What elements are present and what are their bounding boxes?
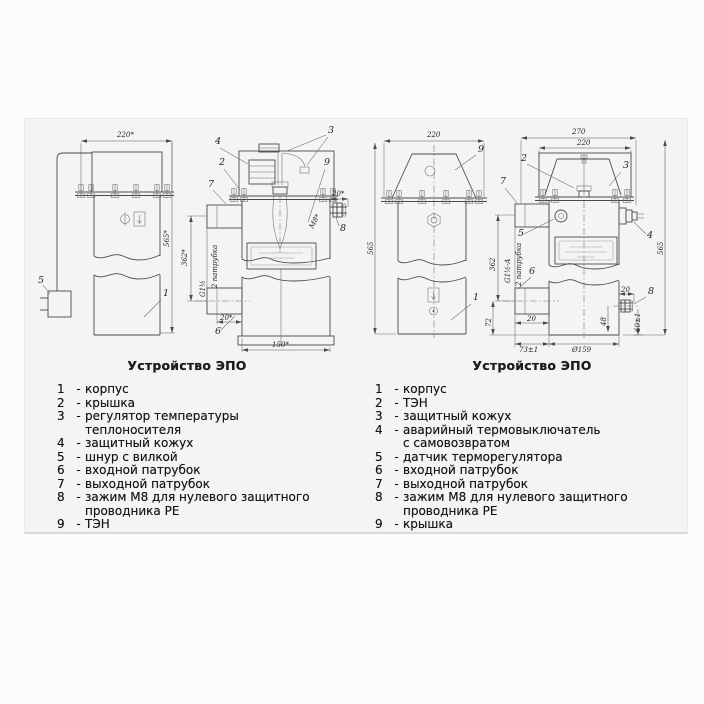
dash: -: [390, 424, 403, 451]
dash: -: [72, 518, 85, 532]
parts-list-item: 9-ТЭН: [57, 518, 367, 532]
dim-label: 60±1: [634, 313, 642, 332]
callout-number: 7: [500, 176, 507, 187]
dash: -: [72, 464, 85, 478]
figure2-section: 220 9: [367, 125, 697, 532]
scanned-page: 220* 5 1: [24, 118, 688, 534]
dim-label: 270: [571, 128, 586, 136]
part-number: 7: [375, 478, 390, 492]
callout-number: 2: [218, 157, 225, 168]
part-label: входной патрубок: [85, 464, 337, 478]
part-label: датчик терморегулятора: [403, 451, 655, 465]
part-label: выходной патрубок: [85, 478, 337, 492]
dash: -: [390, 518, 403, 532]
callout-number: 3: [328, 125, 334, 136]
dim-label: 73±1: [519, 346, 538, 354]
dim-label: 362: [489, 257, 497, 271]
dash: -: [72, 491, 85, 518]
dim-label: 48: [600, 317, 608, 327]
fig1-section-view: 3 4 2 9 150* 7: [181, 125, 348, 352]
callout-number: 5: [38, 275, 44, 286]
parts-list-item: 5-шнур с вилкой: [57, 451, 367, 465]
figure-caption: Устройство ЭПО: [367, 358, 697, 373]
dim-label: 150*: [272, 341, 289, 349]
part-number: 3: [57, 410, 72, 437]
parts-list-item: 3-регулятор температуры теплоносителя: [57, 410, 367, 437]
part-label: аварийный термовыключатель с самовозврат…: [403, 424, 655, 451]
figure1-drawing: 220* 5 1: [37, 125, 357, 355]
part-label: входной патрубок: [403, 464, 655, 478]
parts-list-item: 8-зажим М8 для нулевого защитного провод…: [57, 491, 367, 518]
callout-number: 8: [340, 223, 346, 234]
part-number: 5: [375, 451, 390, 465]
thermostat-sensor: [555, 210, 567, 222]
part-label: защитный кожух: [403, 410, 655, 424]
part-label: ТЭН: [85, 518, 337, 532]
dash: -: [390, 478, 403, 492]
dim-label: 220: [426, 131, 441, 139]
fig2-front-view: 220 9: [367, 131, 487, 338]
outlet-pipe: [515, 204, 549, 227]
part-label: ТЭН: [403, 397, 655, 411]
part-number: 5: [57, 451, 72, 465]
dim-label: 565*: [163, 230, 171, 247]
dim-label: 20*: [219, 314, 233, 322]
part-label: крышка: [403, 518, 655, 532]
callout-number: 1: [163, 288, 169, 299]
outlet-pipe: [207, 205, 242, 228]
part-label: крышка: [85, 397, 337, 411]
figure2-drawing: 220 9: [367, 125, 677, 355]
dim-label: 220*: [116, 131, 134, 139]
dim-label: 20*: [331, 190, 345, 198]
part-label: зажим М8 для нулевого защитного проводни…: [85, 491, 337, 518]
callout-number: 5: [518, 228, 524, 239]
part-number: 6: [57, 464, 72, 478]
dim-label: 362*: [181, 249, 189, 266]
part-number: 4: [57, 437, 72, 451]
part-number: 1: [375, 383, 390, 397]
parts-list-item: 4-аварийный термовыключатель с самовозвр…: [375, 424, 697, 451]
dim-label: 20: [526, 315, 536, 323]
dim-label: 2 патрубка: [211, 245, 219, 289]
callout-number: 4: [214, 136, 221, 147]
part-number: 9: [375, 518, 390, 532]
dim-label: 20: [620, 286, 630, 294]
parts-list-item: 2-крышка: [57, 397, 367, 411]
dash: -: [390, 383, 403, 397]
parts-list-item: 9-крышка: [375, 518, 697, 532]
part-number: 7: [57, 478, 72, 492]
parts-list-item: 1-корпус: [57, 383, 367, 397]
callout-number: 6: [215, 326, 221, 337]
dash: -: [72, 478, 85, 492]
parts-list-item: 6-входной патрубок: [57, 464, 367, 478]
plug: [48, 291, 71, 317]
callout-number: 3: [623, 160, 629, 171]
dim-label: G1½: [199, 280, 207, 297]
part-label: шнур с вилкой: [85, 451, 337, 465]
callout-number: 1: [473, 292, 479, 303]
heating-element: [273, 196, 280, 249]
part-number: 9: [57, 518, 72, 532]
dash: -: [390, 397, 403, 411]
part-number: 8: [57, 491, 72, 518]
parts-list-item: 3-защитный кожух: [375, 410, 697, 424]
parts-list: 1-корпус 2-ТЭН 3-защитный кожух 4-аварий…: [367, 383, 697, 532]
parts-list-item: 7-выходной патрубок: [57, 478, 367, 492]
part-label: регулятор температуры теплоносителя: [85, 410, 337, 437]
earth-stud: [333, 203, 337, 217]
dim-label: 72: [485, 318, 493, 327]
dash: -: [390, 451, 403, 465]
figure1-section: 220* 5 1: [37, 125, 367, 532]
part-number: 1: [57, 383, 72, 397]
dash: -: [72, 437, 85, 451]
part-label: выходной патрубок: [403, 478, 655, 492]
callout-number: 6: [529, 266, 535, 277]
parts-list-item: 5-датчик терморегулятора: [375, 451, 697, 465]
fig1-front-view: 220* 5 1: [38, 131, 175, 335]
page: { "ui": {"dash": "-"}, "fig1": { "captio…: [0, 0, 704, 704]
parts-list-item: 8-зажим М8 для нулевого защитного провод…: [375, 491, 697, 518]
part-label: корпус: [403, 383, 655, 397]
dim-label: Ø159: [571, 346, 592, 354]
part-label: защитный кожух: [85, 437, 337, 451]
dim-label: 565: [657, 241, 665, 255]
dim-label: 565: [367, 241, 375, 255]
part-number: 2: [57, 397, 72, 411]
part-label: зажим М8 для нулевого защитного проводни…: [403, 491, 655, 518]
callout-number: 8: [648, 286, 654, 297]
parts-list-item: 4-защитный кожух: [57, 437, 367, 451]
callout-number: 4: [646, 230, 653, 241]
part-number: 8: [375, 491, 390, 518]
dash: -: [72, 397, 85, 411]
parts-list-item: 2-ТЭН: [375, 397, 697, 411]
part-number: 6: [375, 464, 390, 478]
dash: -: [72, 451, 85, 465]
dash: -: [72, 410, 85, 437]
callout-number: 9: [478, 144, 484, 155]
parts-list-item: 6-входной патрубок: [375, 464, 697, 478]
figure-caption: Устройство ЭПО: [37, 358, 337, 373]
parts-list-item: 7-выходной патрубок: [375, 478, 697, 492]
part-number: 2: [375, 397, 390, 411]
dim-label: 2 патрубка: [515, 243, 523, 287]
dim-label: G1½-A: [504, 259, 512, 283]
dim-label: М8*: [307, 212, 322, 230]
part-label: корпус: [85, 383, 337, 397]
thermal-cutout: [619, 208, 626, 224]
part-number: 4: [375, 424, 390, 451]
dash: -: [390, 464, 403, 478]
fig2-section-view: 270 220 2 3: [485, 128, 665, 354]
callout-number: 7: [208, 179, 215, 190]
dash: -: [390, 410, 403, 424]
power-cord: [57, 153, 92, 291]
dash: -: [72, 383, 85, 397]
callout-number: 2: [520, 153, 527, 164]
parts-list: 1-корпус 2-крышка 3-регулятор температур…: [37, 383, 367, 532]
dash: -: [390, 491, 403, 518]
dim-label: 220: [576, 139, 591, 147]
part-number: 3: [375, 410, 390, 424]
callout-number: 9: [324, 157, 330, 168]
parts-list-item: 1-корпус: [375, 383, 697, 397]
